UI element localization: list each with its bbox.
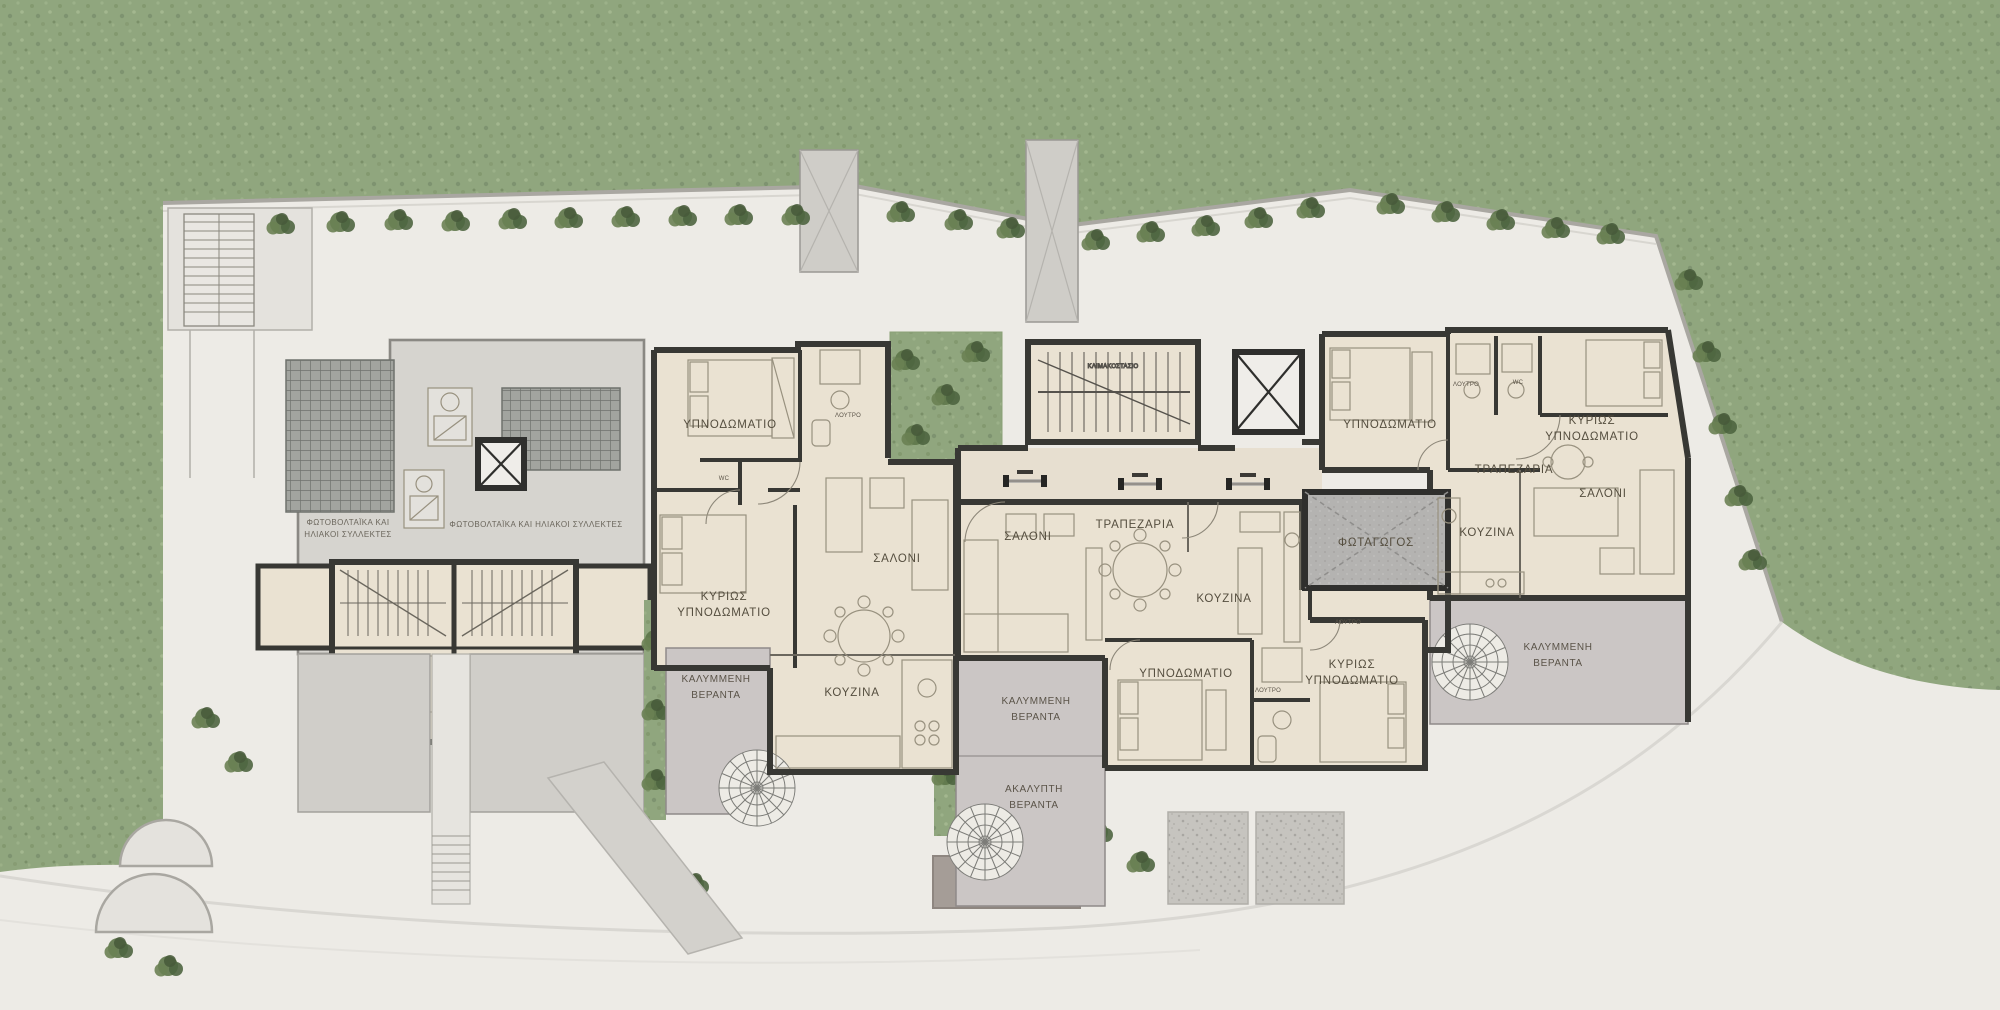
light-well: ΦΩΤΑΓΩΓΟΣ [1305,492,1448,588]
apt1-wc-label: WC [719,476,730,482]
apt2-kitchen-label: ΚΟΥΖΙΝΑ [1196,593,1251,605]
apt3-bath1-label: ΛΟΥΤΡΟ [1453,382,1479,388]
apt2-bath-label: ΛΟΥΤΡΟ [1255,688,1281,694]
stone-path-1 [1168,812,1248,904]
apt2-bath2-label: ΛΟΥΤΡΟ [1335,620,1361,626]
apt2-master-label-2: ΥΠΝΟΔΩΜΑΤΙΟ [1305,675,1399,687]
apt1-veranda-label-1: ΚΑΛΥΜΜΕΝΗ [681,674,750,685]
apt1-master-label-2: ΥΠΝΟΔΩΜΑΤΙΟ [677,607,771,619]
apt1-veranda-label-2: ΒΕΡΑΝΤΑ [691,690,740,701]
apt3-veranda: ΚΑΛΥΜΜΕΝΗ ΒΕΡΑΝΤΑ [1430,600,1688,724]
site-plan-svg: ΦΩΤΟΒΟΛΤΑΪΚΑ ΚΑΙ ΗΛΙΑΚΟΙ ΣΥΛΛΕΚΤΕΣ ΦΩΤΟΒ… [0,0,2000,1010]
apt2-dining-label: ΤΡΑΠΕΖΑΡΙΑ [1096,519,1175,531]
apt3-veranda-label-2: ΒΕΡΑΝΤΑ [1533,658,1582,669]
apt3-master-label-2: ΥΠΝΟΔΩΜΑΤΙΟ [1545,431,1639,443]
apt1-bedroom-label: ΥΠΝΟΔΩΜΑΤΙΟ [683,419,777,431]
stone-path-2 [1256,812,1344,904]
apt3-dining-label: ΤΡΑΠΕΖΑΡΙΑ [1475,464,1554,476]
apt2-open-veranda-label-1: ΑΚΑΛΥΠΤΗ [1005,784,1063,795]
left-shaft-box [478,440,524,488]
apt1-living-label: ΣΑΛΟΝΙ [873,553,920,565]
apt2-covered-veranda-label-2: ΒΕΡΑΝΤΑ [1011,712,1060,723]
apt3-living-label: ΣΑΛΟΝΙ [1579,488,1626,500]
elevator-shaft [1235,352,1302,432]
light-well-label: ΦΩΤΑΓΩΓΟΣ [1338,537,1414,549]
roof-label-left-line2: ΗΛΙΑΚΟΙ ΣΥΛΛΕΚΤΕΣ [304,530,391,539]
apt1-kitchen-label: ΚΟΥΖΙΝΑ [824,687,879,699]
veranda3-tree [1432,624,1508,700]
solar-panel-array-left [286,360,394,512]
apt1-bath-label: ΛΟΥΤΡΟ [835,413,861,419]
floor-plan-canvas: ΦΩΤΟΒΟΛΤΑΪΚΑ ΚΑΙ ΗΛΙΑΚΟΙ ΣΥΛΛΕΚΤΕΣ ΦΩΤΟΒ… [0,0,2000,1010]
apt3-veranda-label-1: ΚΑΛΥΜΜΕΝΗ [1523,642,1592,653]
apt2-covered-veranda-label-1: ΚΑΛΥΜΜΕΝΗ [1001,696,1070,707]
apt3-kitchen-label: ΚΟΥΖΙΝΑ [1459,527,1514,539]
solar-heater-unit-1 [428,388,472,446]
roof-label-left-line1: ΦΩΤΟΒΟΛΤΑΪΚΑ ΚΑΙ [306,518,389,527]
apt2-bedroom-label: ΥΠΝΟΔΩΜΑΤΙΟ [1139,668,1233,680]
roof-label-right: ΦΩΤΟΒΟΛΤΑΪΚΑ ΚΑΙ ΗΛΙΑΚΟΙ ΣΥΛΛΕΚΤΕΣ [449,520,622,529]
apt2-veranda: ΚΑΛΥΜΜΕΝΗ ΒΕΡΑΝΤΑ ΑΚΑΛΥΠΤΗ ΒΕΡΑΝΤΑ [947,660,1105,906]
street-ramp-left [800,150,858,272]
apt1-master-label-1: ΚΥΡΙΩΣ [701,591,748,603]
solar-heater-unit-2 [404,470,444,528]
apt2-master-label-1: ΚΥΡΙΩΣ [1329,659,1376,671]
apt2-living-label: ΣΑΛΟΝΙ [1004,531,1051,543]
staircase-label: ΚΛΙΜΑΚΟΣΤΑΣΙΟ [1088,364,1139,370]
apt2-open-veranda-label-2: ΒΕΡΑΝΤΑ [1009,800,1058,811]
apt3-bath2-label: WC [1513,380,1524,386]
apt3-master-label-1: ΚΥΡΙΩΣ [1569,415,1616,427]
street-ramp-right [1026,140,1078,322]
veranda2-tree [947,804,1023,880]
veranda1-tree [719,750,795,826]
apt3-bedroom-label: ΥΠΝΟΔΩΜΑΤΙΟ [1343,419,1437,431]
